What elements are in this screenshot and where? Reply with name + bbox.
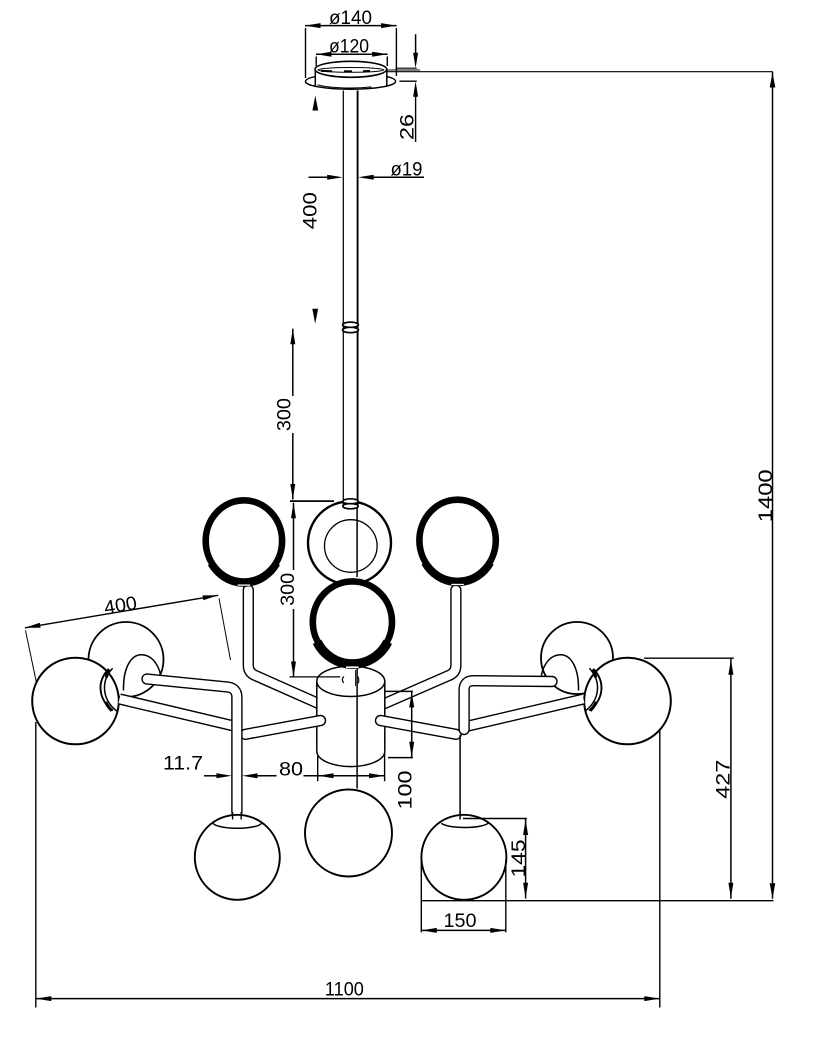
svg-text:300: 300 [278, 573, 299, 606]
svg-text:ø120: ø120 [329, 37, 369, 58]
svg-text:1100: 1100 [325, 980, 364, 1001]
svg-text:427: 427 [714, 760, 735, 799]
svg-text:ø19: ø19 [391, 160, 423, 181]
svg-text:150: 150 [444, 911, 477, 932]
svg-text:1400: 1400 [756, 469, 777, 522]
svg-text:300: 300 [275, 398, 296, 431]
svg-text:400: 400 [301, 192, 322, 229]
svg-text:11.7: 11.7 [163, 754, 203, 775]
svg-text:80: 80 [279, 760, 303, 781]
svg-text:100: 100 [395, 771, 416, 810]
svg-text:145: 145 [509, 840, 530, 878]
svg-text:ø140: ø140 [329, 8, 372, 29]
svg-text:26: 26 [397, 114, 418, 140]
